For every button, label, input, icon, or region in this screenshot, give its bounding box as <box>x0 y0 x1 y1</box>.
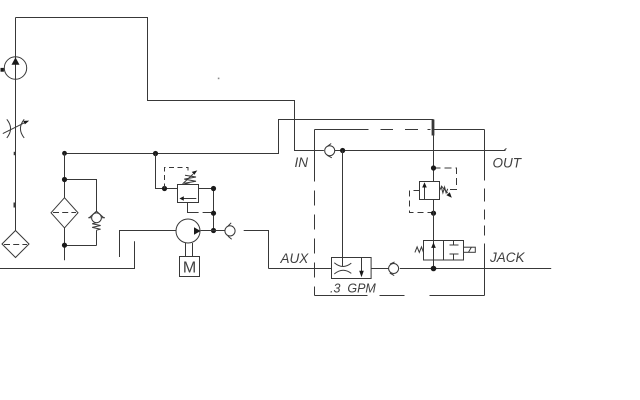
svg-text:M: M <box>183 260 196 277</box>
svg-text:OUT: OUT <box>493 156 523 171</box>
svg-text:.3 GPM: .3 GPM <box>330 282 376 296</box>
svg-text:IN: IN <box>295 155 309 170</box>
svg-text:AUX: AUX <box>280 251 310 266</box>
svg-text:JACK: JACK <box>489 250 526 265</box>
